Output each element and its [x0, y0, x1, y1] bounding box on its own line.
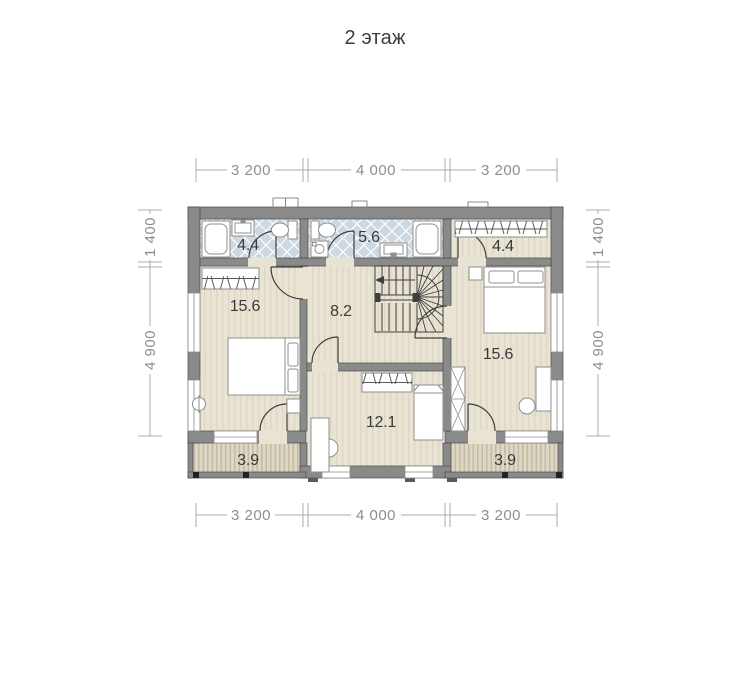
opening-balcony-left — [259, 430, 287, 444]
railing-post — [193, 472, 199, 478]
wall-bath1-bath2 — [300, 219, 308, 258]
vent-shaft-icon — [468, 202, 488, 207]
desk-icon — [536, 367, 551, 411]
room-label-balcony-right: 3.9 — [494, 452, 516, 469]
dim-label-bottom-3: 3 200 — [481, 507, 521, 524]
wardrobe-rail-icon — [455, 221, 547, 237]
wardrobe-rail-icon — [202, 268, 259, 289]
nightstand-icon — [469, 267, 482, 280]
sink-icon — [232, 220, 254, 236]
room-label-dressing-room: 4.4 — [492, 238, 514, 255]
dim-label-top-1: 3 200 — [231, 162, 271, 179]
opening-bathroom-large — [326, 257, 354, 267]
opening-bathroom-small — [248, 257, 276, 267]
room-label-bedroom-left: 15.6 — [230, 298, 261, 315]
railing-post — [556, 472, 562, 478]
room-label-hall: 8.2 — [330, 303, 352, 320]
railing-post — [243, 472, 249, 478]
toilet-icon — [311, 221, 336, 239]
dim-label-left-1: 1 400 — [142, 217, 159, 257]
foundation-notch — [405, 478, 415, 482]
window-right-lower — [551, 380, 563, 431]
window-left-upper — [188, 293, 200, 352]
wardrobe-x-icon — [451, 367, 465, 431]
foundation-notch — [447, 478, 457, 482]
nightstand-icon — [287, 399, 300, 413]
window-right-upper — [551, 293, 563, 352]
opening-balcony-right — [468, 430, 496, 444]
floor-plan-svg: 2 этаж — [0, 0, 750, 688]
sink-icon — [380, 243, 407, 257]
opening-dressing — [458, 257, 486, 267]
toilet-icon — [272, 221, 298, 239]
desk-icon — [311, 418, 329, 472]
opening-room-bottom — [312, 362, 338, 372]
bed-icon — [414, 385, 443, 440]
wardrobe-rail-icon — [362, 373, 412, 392]
washing-machine-icon — [311, 241, 328, 257]
room-label-bathroom-small: 4.4 — [237, 237, 259, 254]
page-title: 2 этаж — [344, 27, 406, 49]
opening-bedroom-left — [299, 267, 308, 299]
vent-shaft-icon — [352, 201, 367, 207]
dim-label-bottom-1: 3 200 — [231, 507, 271, 524]
window-roombottom-2 — [405, 466, 433, 478]
bathtub-icon — [202, 221, 230, 257]
bed-icon — [228, 338, 300, 395]
wall-top — [188, 207, 563, 219]
dim-label-right-1: 1 400 — [590, 217, 607, 257]
window-bedroomL-balcony — [214, 431, 257, 443]
floor-plan-page: 2 этаж — [0, 0, 750, 688]
bathtub-icon — [413, 221, 441, 257]
bed-icon — [484, 267, 545, 333]
room-label-room-bottom: 12.1 — [366, 414, 397, 431]
dim-label-top-3: 3 200 — [481, 162, 521, 179]
pouf-icon — [519, 398, 535, 414]
room-label-balcony-left: 3.9 — [237, 452, 259, 469]
foundation-notch — [308, 478, 318, 482]
dim-label-left-2: 4 900 — [142, 330, 159, 370]
dim-label-top-2: 4 000 — [356, 162, 396, 179]
stairs-rail-post — [375, 294, 380, 302]
wall-hall-bedroomR — [443, 266, 451, 431]
dim-label-bottom-2: 4 000 — [356, 507, 396, 524]
vent-divider — [285, 198, 286, 207]
room-label-bathroom-large: 5.6 — [358, 229, 380, 246]
wall-bath2-dressing — [443, 219, 451, 258]
railing-post — [502, 472, 508, 478]
room-label-bedroom-right: 15.6 — [483, 346, 514, 363]
window-bedroomR-balcony — [505, 431, 548, 443]
dim-label-right-2: 4 900 — [590, 330, 607, 370]
